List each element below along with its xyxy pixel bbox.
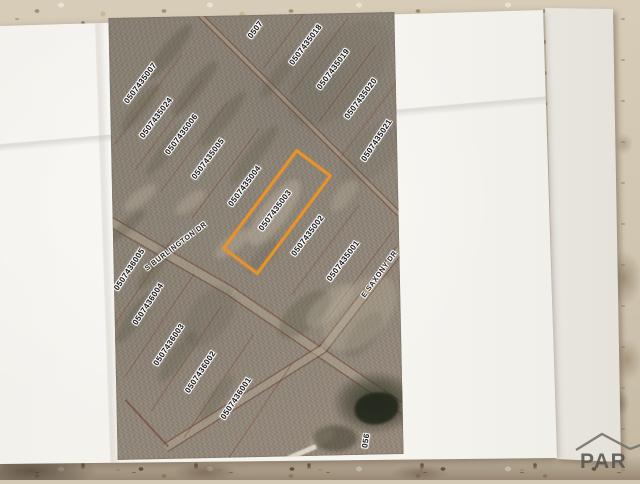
pond-tail [313, 425, 358, 452]
parcel-label: 0507 [247, 20, 265, 40]
aerial-parcel-map: 0507050743501805074350190507435020050743… [108, 12, 403, 460]
vegetation-patch [167, 56, 223, 121]
parcel-label: 0507436002 [184, 350, 218, 395]
watermark-text: PAR [580, 451, 627, 472]
parcel-label: 0507435001 [326, 239, 361, 283]
parcel-label: 056 [361, 433, 371, 449]
realtor-watermark: PAR [572, 429, 640, 479]
road-branch-line [125, 399, 170, 448]
